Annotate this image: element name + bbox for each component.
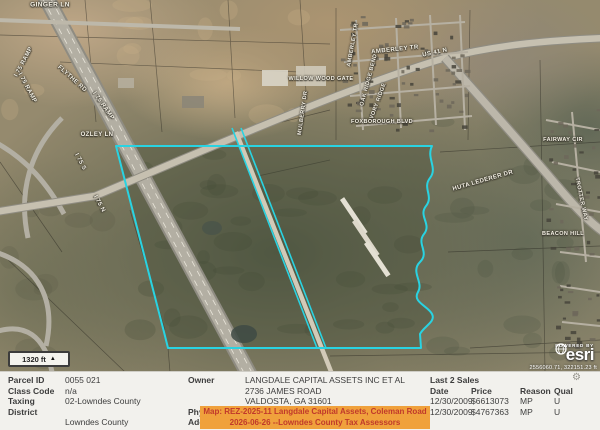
sale-price: $6613073: [471, 396, 520, 407]
sale-qual: U: [554, 396, 578, 407]
rezoning-annotation-line2: 2026-06-26 --Lowndes County Tax Assessor…: [202, 418, 428, 429]
sale-price: $4767363: [471, 407, 520, 418]
map-graphics: [0, 0, 600, 372]
sales-col-reason: Reason: [520, 386, 554, 397]
aerial-map[interactable]: GINGER LNI 75 RAMPI 75 RAMPFLYTHE RDI 75…: [0, 0, 600, 372]
scale-bar-label: 1320 ft: [22, 355, 46, 364]
rezoning-annotation: Map: REZ-2025-11 Langdale Capital Assets…: [200, 406, 430, 429]
sale-date: 12/30/2009: [430, 407, 471, 418]
taxing-district-row: Taxing District 02-Lowndes County: [8, 396, 186, 417]
sale-reason: MP: [520, 407, 554, 418]
scale-bar[interactable]: 1320 ft ▲: [8, 351, 70, 367]
road-ramp-nw: [25, 118, 62, 238]
owner-city: VALDOSTA, GA 31601: [245, 396, 426, 407]
taxing-district-value-1: 02-Lowndes County: [65, 396, 186, 417]
sale-reason: MP: [520, 396, 554, 407]
class-code-row: Class Code n/a: [8, 386, 186, 397]
esri-attribution: POWERED BY esri: [555, 343, 594, 362]
cursor-coordinates: 2556060.71, 322151.23 ft: [530, 365, 598, 371]
sale-qual: U: [554, 407, 578, 418]
owner-street: 2736 JAMES ROAD: [245, 386, 426, 397]
owner-label: Owner: [188, 375, 245, 386]
parcel-id-value: 0055 021: [65, 375, 186, 386]
owner-name: LANGDALE CAPITAL ASSETS INC ET AL: [245, 375, 426, 386]
class-code-label: Class Code: [8, 386, 65, 397]
esri-globe-icon: [555, 343, 567, 355]
parcel-info-panel: Parcel ID 0055 021 Class Code n/a Taxing…: [0, 371, 600, 430]
taxing-district-value-2: Lowndes County: [65, 417, 186, 428]
sales-col-qual: Qual: [554, 386, 578, 397]
sales-title: Last 2 Sales: [430, 375, 580, 386]
parcel-summary-column: Parcel ID 0055 021 Class Code n/a Taxing…: [8, 375, 186, 430]
parcel-forest-fill: [116, 146, 433, 348]
sales-table: Date Price Reason Qual 12/30/2009 $66130…: [430, 386, 580, 418]
sale-date: 12/30/2009: [430, 396, 471, 407]
scale-bar-arrow-icon: ▲: [50, 356, 56, 362]
gear-icon[interactable]: ⚙: [572, 373, 581, 383]
sales-col-price: Price: [471, 386, 520, 397]
owner-row: Owner LANGDALE CAPITAL ASSETS INC ET AL: [188, 375, 426, 386]
esri-logo-text: esri: [566, 348, 594, 362]
class-code-value: n/a: [65, 386, 186, 397]
parcel-id-label: Parcel ID: [8, 375, 65, 386]
taxing-district-row-2: Lowndes County: [8, 417, 186, 428]
sales-col-date: Date: [430, 386, 471, 397]
rezoning-annotation-line1: Map: REZ-2025-11 Langdale Capital Assets…: [202, 407, 428, 418]
taxing-district-label: Taxing District: [8, 396, 65, 417]
sales-column: Last 2 Sales Date Price Reason Qual 12/3…: [430, 375, 580, 417]
pond: [231, 325, 257, 343]
parcel-id-row: Parcel ID 0055 021: [8, 375, 186, 386]
gis-parcel-viewer: GINGER LNI 75 RAMPI 75 RAMPFLYTHE RDI 75…: [0, 0, 600, 430]
